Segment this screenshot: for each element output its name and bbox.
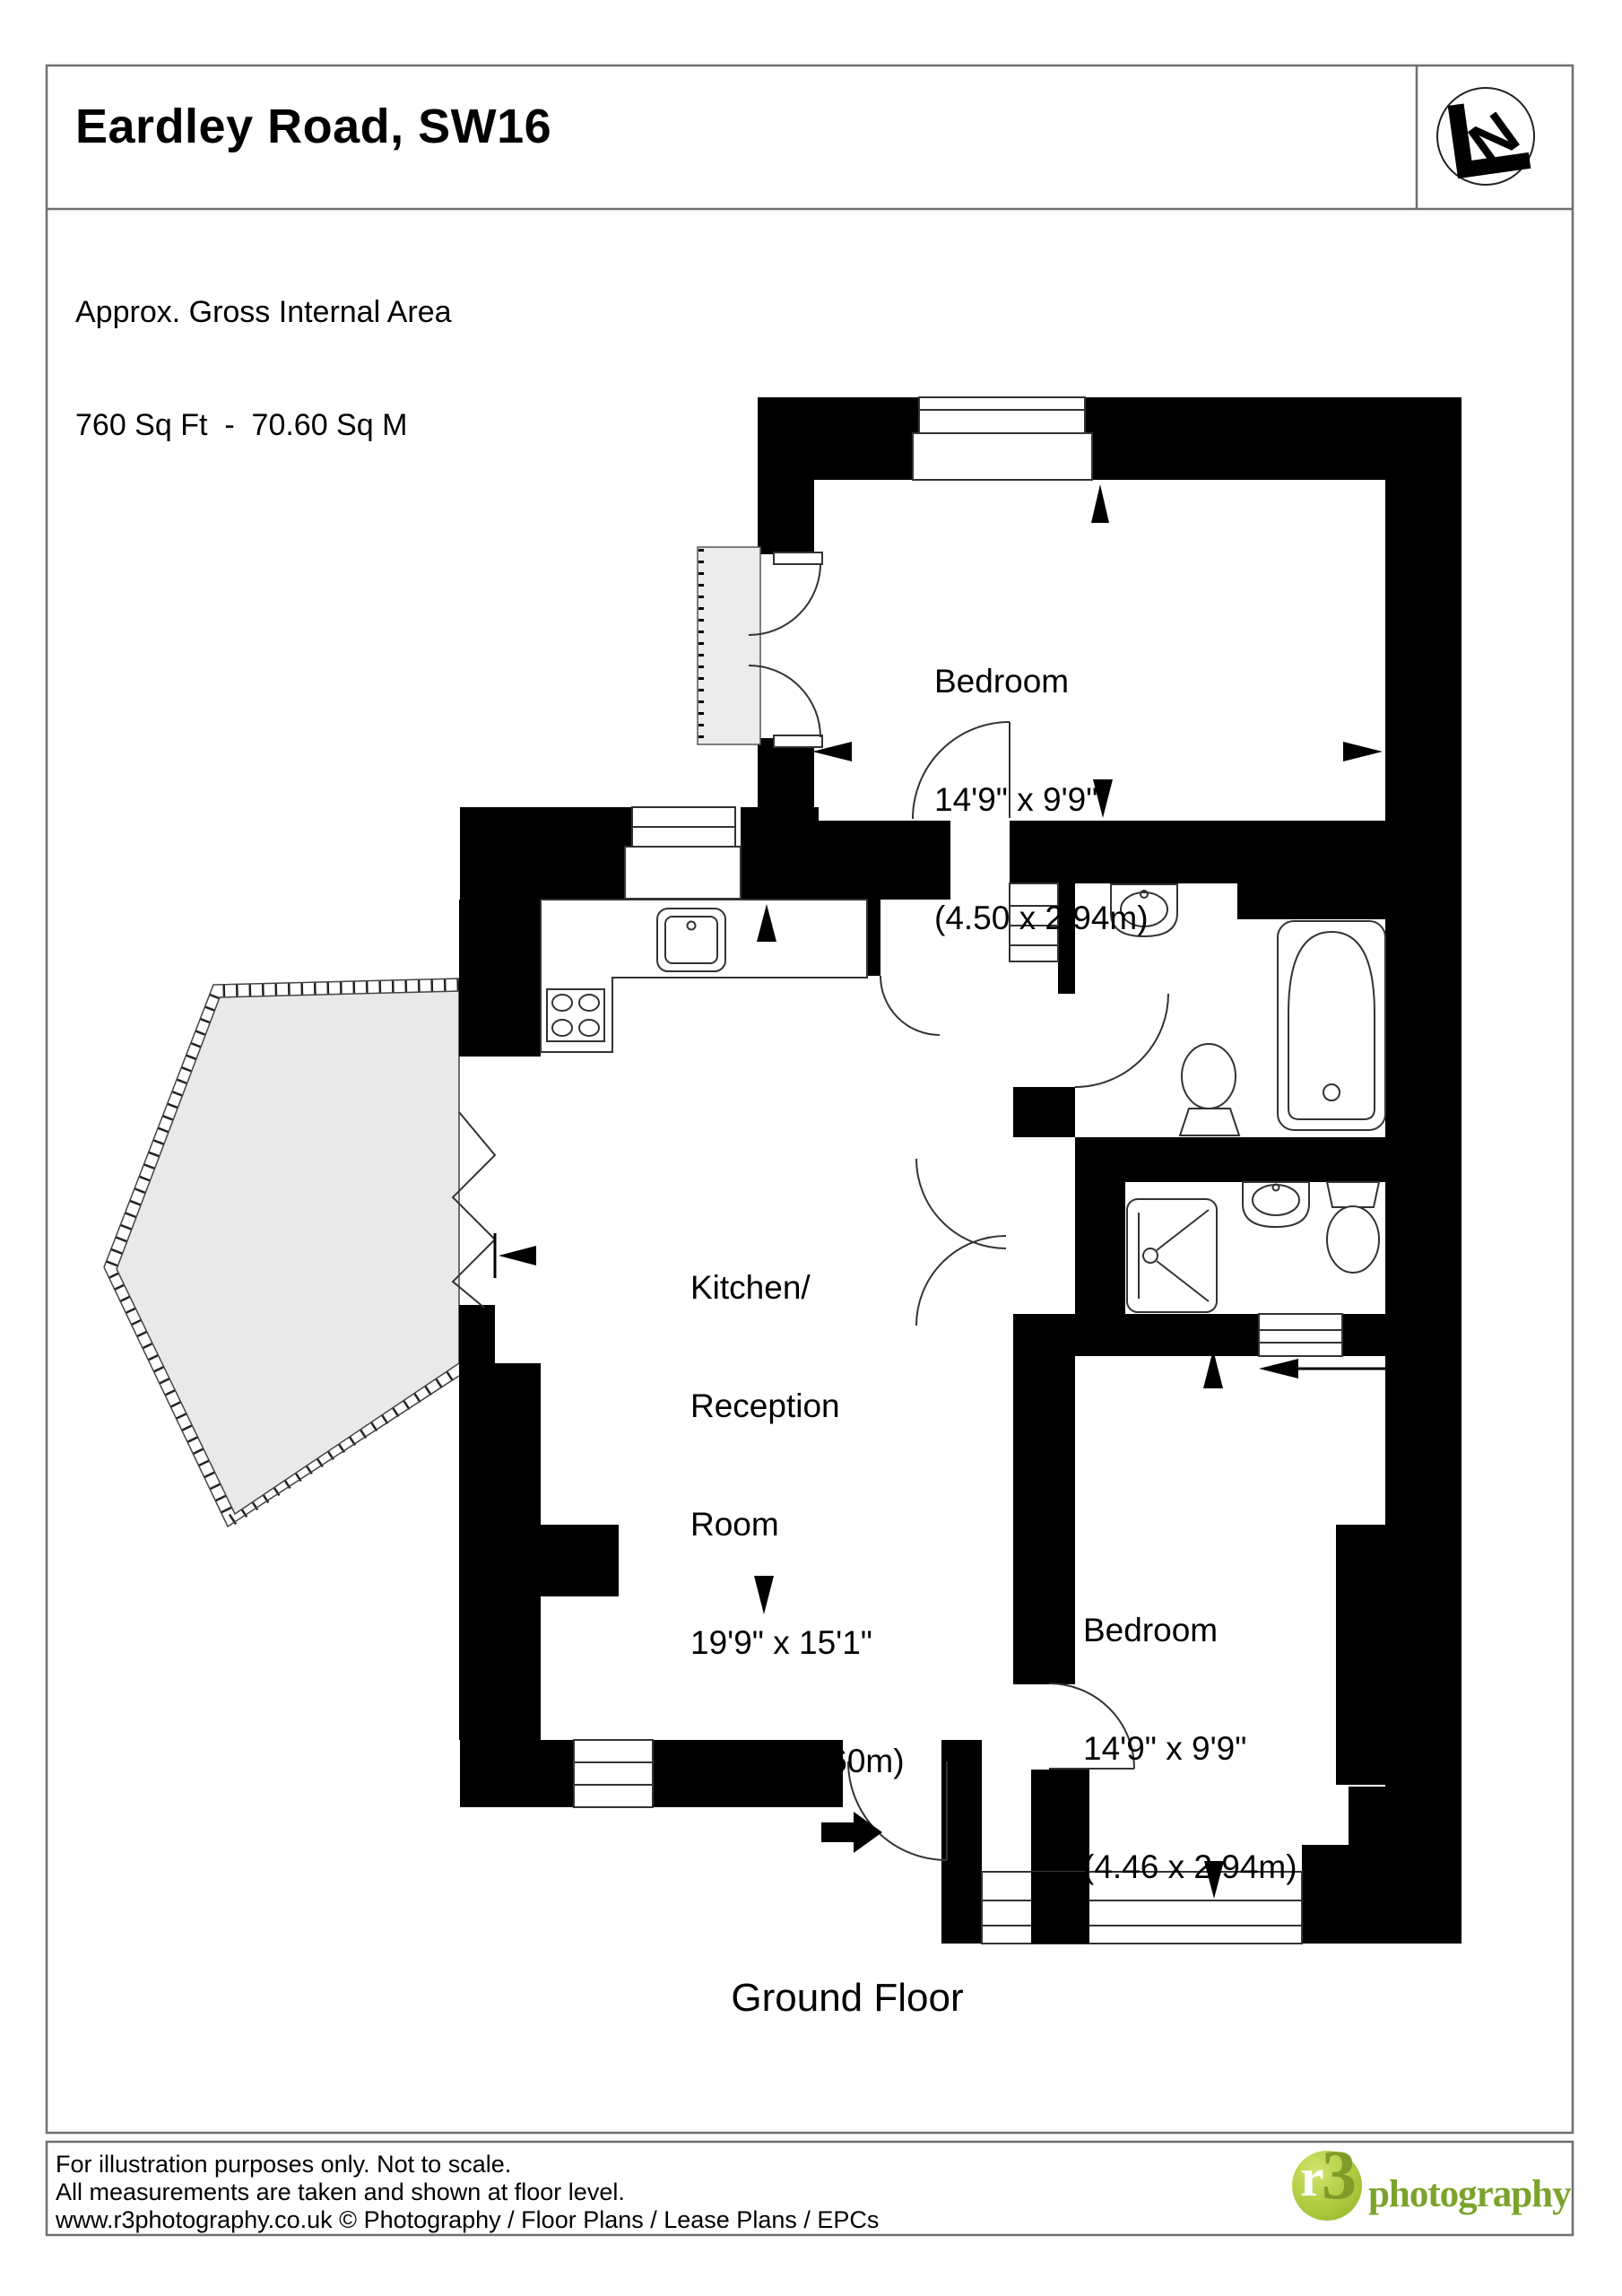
floorplan-page: N: [0, 0, 1622, 2296]
room-size-metric: (4.46 x 2.94m): [1083, 1848, 1297, 1887]
label-bedroom-bottom: Bedroom 14'9" x 9'9" (4.46 x 2.94m): [1083, 1532, 1297, 1966]
room-name: Bedroom: [1083, 1611, 1297, 1650]
room-name: Reception: [690, 1387, 905, 1426]
label-kitchen-reception: Kitchen/ Reception Room 19'9" x 15'1" (6…: [690, 1189, 905, 1860]
footer-disclaimer: For illustration purposes only. Not to s…: [56, 2151, 879, 2234]
bathroom-fixtures: [1111, 884, 1385, 1135]
label-bedroom-top: Bedroom 14'9" x 9'9" (4.50 x 2.94m): [934, 583, 1149, 1017]
r3photography-logo: 3 r photography: [1289, 2144, 1573, 2230]
floor-label: Ground Floor: [533, 1976, 1161, 2021]
room-size-imperial: 14'9" x 9'9": [934, 780, 1149, 820]
kitchen-fixtures: [541, 900, 867, 1052]
room-name: Kitchen/: [690, 1268, 905, 1308]
room-name: Bedroom: [934, 662, 1149, 701]
page-title: Eardley Road, SW16: [75, 99, 551, 154]
bathtub: [1278, 921, 1385, 1130]
area-line1: Approx. Gross Internal Area: [75, 293, 452, 331]
footer-line2: All measurements are taken and shown at …: [56, 2179, 879, 2206]
shower-tray: [1127, 1199, 1217, 1312]
footer-line3: www.r3photography.co.uk © Photography / …: [56, 2206, 879, 2234]
shower-room-toilet: [1327, 1182, 1379, 1207]
area-line2: 760 Sq Ft - 70.60 Sq M: [75, 406, 452, 444]
room-size-metric: (4.50 x 2.94m): [934, 899, 1149, 938]
french-door-panel: [698, 547, 822, 747]
r3-logo-word: photography: [1368, 2172, 1571, 2216]
bay-window: [104, 978, 459, 1526]
room-size-metric: (6.05 x 4.60m): [690, 1742, 905, 1781]
r3-logo-3: 3: [1322, 2140, 1357, 2210]
gross-internal-area: Approx. Gross Internal Area 760 Sq Ft - …: [75, 218, 452, 519]
footer-line1: For illustration purposes only. Not to s…: [56, 2151, 879, 2179]
room-size-imperial: 14'9" x 9'9": [1083, 1729, 1297, 1769]
r3-logo-r: r: [1300, 2151, 1324, 2205]
compass-logo-icon: N: [1437, 88, 1534, 185]
room-name: Room: [690, 1505, 905, 1544]
shower-room-fixtures: [1127, 1182, 1379, 1312]
room-size-imperial: 19'9" x 15'1": [690, 1623, 905, 1663]
toilet: [1182, 1044, 1236, 1109]
